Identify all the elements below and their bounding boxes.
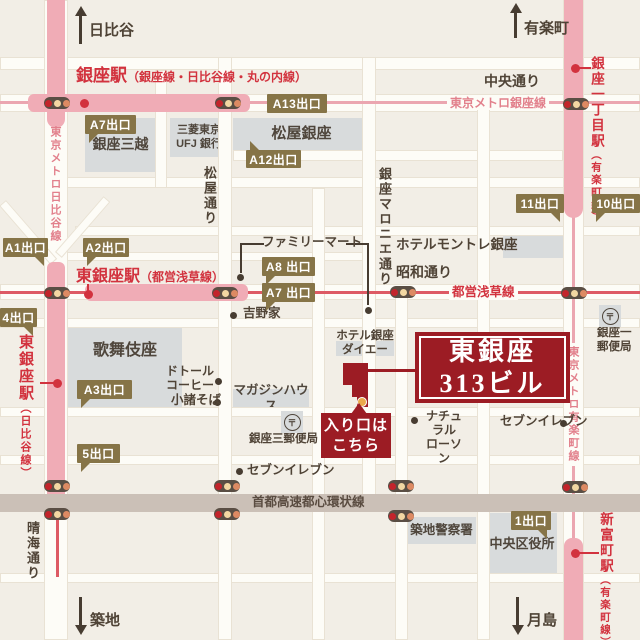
station-label: 新富町駅（有楽町線） [597,512,613,640]
traffic-light-lamp [580,290,587,297]
traffic-light-lamp [233,483,240,490]
map-label: 東京メトロ銀座線 [447,96,549,110]
traffic-light-icon [215,97,241,109]
label-text: セブンイレブン [500,414,588,429]
label-text: 銀座一 [597,327,632,341]
label-text: 東京メトロ銀座線 [450,96,546,110]
exit-badge-tail [89,133,99,143]
traffic-light-lamp [222,290,229,297]
traffic-light-lamp [45,511,52,518]
label-text: A3出口 [84,381,125,398]
poi-dot [411,417,418,424]
exit-badge: A3出口 [77,380,132,399]
label-text: 銀座三越 [93,136,149,154]
traffic-light-lamp [391,289,398,296]
label-text: 東京メトロ日比谷線 [49,126,60,243]
poi-label: ドトールコーヒー [166,364,214,392]
label-text: ホテルモントレ銀座 [396,237,518,253]
entrance-callout-pointer-icon [351,403,367,414]
traffic-light-icon [214,480,240,492]
destination-building-name: 東銀座 313ビル [419,336,566,399]
exit-badge-tail [34,256,44,266]
label-text: UFJ 銀行 [176,138,222,152]
traffic-light-icon [212,287,238,299]
traffic-light-icon [562,481,588,493]
station-line-suffix: （銀座線・日比谷線・丸の内線） [127,70,307,84]
exit-badge: A12出口 [246,150,301,168]
traffic-light-lamp [562,290,569,297]
label-text: 4出口 [2,309,34,326]
post-office-icon: 〒 [599,305,621,327]
arrow-up-yurakucho-head [510,3,522,13]
traffic-light-lamp [63,483,70,490]
exit-badge-tail [266,301,276,311]
traffic-light-lamp [400,289,407,296]
exit-badge-tail [550,212,560,222]
map-label: 銀座三郵便局 [249,433,318,447]
exit-badge: A13出口 [267,94,327,113]
label-text: 郵便局 [597,341,632,355]
ginza-station-dot [80,99,89,108]
road-segment [395,294,408,640]
exit-badge-tail [87,256,97,266]
label-text: 5出口 [82,445,114,462]
map-label: 銀座マロニエ通り [378,167,391,287]
label-text: 1出口 [515,512,547,529]
shintomicho-station-dot [571,549,580,558]
arrow-down-tsukishima-head [512,625,524,635]
traffic-light-lamp [573,101,580,108]
traffic-light-lamp [215,511,222,518]
label-text: セブンイレブン [247,463,335,478]
traffic-light-lamp [54,290,61,297]
label-text: 歌舞伎座 [93,341,157,361]
traffic-light-icon [44,480,70,492]
traffic-light-lamp [54,483,61,490]
traffic-light-icon [561,287,587,299]
traffic-light-lamp [407,483,414,490]
label-text: A12出口 [249,151,298,168]
exit-badge: A7出口 [85,115,136,134]
poi-label: セブンイレブン [247,463,335,478]
label-text: ホテル銀座 [334,330,396,344]
traffic-light-lamp [54,100,61,107]
arrow-down-tsukiji [79,597,82,627]
traffic-light-icon [388,480,414,492]
label-text: 日比谷 [89,22,134,40]
exit-badge: 5出口 [77,444,120,463]
label-text: ローソン [421,437,467,465]
exit-badge: 4出口 [0,308,37,327]
station-line-suffix: （都営浅草線） [140,270,224,284]
label-text: A7 出口 [266,284,311,301]
poi-label: 小諸そば [171,393,221,408]
station-name: 新富町駅 [598,512,613,574]
poi-dot [230,312,237,319]
traffic-light-lamp [45,290,52,297]
station-label: 銀座駅（銀座線・日比谷線・丸の内線） [76,66,307,87]
exit-badge-tail [537,529,547,539]
label-text: ドトール [166,364,214,378]
post-mark: 〒 [284,414,301,431]
traffic-light-lamp [233,511,240,518]
label-text: 有楽町 [524,20,569,38]
familymart-pointer-left-h [240,243,264,245]
traffic-light-lamp [234,100,241,107]
traffic-light-lamp [571,290,578,297]
higashi-ginza-station-dot [84,290,93,299]
poi-label: ナチュラルローソン [421,409,467,466]
label-text: 小諸そば [171,393,221,408]
destination-building-box: 東銀座 313ビル [415,332,570,403]
exit-badge-tail [81,398,91,408]
exit-badge: 10出口 [592,194,640,213]
map-label: 有楽町 [524,20,569,38]
road-segment [62,177,640,188]
traffic-light-lamp [409,289,416,296]
entrance-callout-line1: 入り口は [324,416,388,436]
hibiya-metro-line [56,515,59,577]
map-label: 築地 [90,612,120,630]
label-text: 10出口 [596,195,635,212]
road-segment [218,57,232,640]
traffic-light-lamp [407,513,414,520]
traffic-light-lamp [54,511,61,518]
arrow-up-hibiya [79,14,82,44]
road-segment [155,70,167,188]
traffic-light-lamp [225,100,232,107]
label-text: 都営浅草線 [452,285,515,300]
exit-badge-tail [23,326,33,336]
traffic-light-icon [388,510,414,522]
traffic-light-lamp [581,484,588,491]
traffic-light-icon [214,508,240,520]
map-label: 昭和通り [396,264,452,281]
traffic-light-lamp [45,100,52,107]
poi-dot [365,307,372,314]
map-label: 銀座一郵便局 [597,327,632,354]
map-label: 晴海通り [26,521,39,581]
exit-badge-tail [596,212,606,222]
destination-name-line2: 313ビル [439,368,545,399]
traffic-light-lamp [231,290,238,297]
building-block: マガジンハウス [233,389,309,408]
label-text: 銀座マロニエ通り [378,167,391,287]
higashi-ginza-hibiya-dot [53,379,62,388]
traffic-light-lamp [563,484,570,491]
traffic-light-lamp [213,290,220,297]
label-text: A13出口 [273,95,322,112]
arrow-down-tsukiji-head [75,625,87,635]
traffic-light-lamp [389,483,396,490]
map-label: 中央通り [484,73,540,90]
label-text: 昭和通り [396,264,452,281]
exit-badge-tail [250,141,260,151]
exit-badge: 11出口 [516,194,564,213]
label-text: A7出口 [90,116,131,133]
label-text: A8 出口 [266,258,311,275]
station-label: 東銀座駅（日比谷線） [17,334,33,480]
traffic-light-icon [44,287,70,299]
label-text: A2出口 [85,239,126,256]
exit-badge: 1出口 [511,511,551,530]
map-label: ホテルモントレ銀座 [396,237,518,253]
label-text: 首都高速都心環状線 [252,495,365,510]
map-label: 首都高速都心環状線 [252,495,365,510]
traffic-light-lamp [63,511,70,518]
label-text: 晴海通り [26,521,39,581]
familymart-pointer-left-v [240,243,242,273]
poi-dot [237,274,244,281]
traffic-light-lamp [63,290,70,297]
traffic-light-lamp [45,483,52,490]
poi-dot [236,468,243,475]
label-text: 月島 [527,612,557,630]
arrow-up-yurakucho [514,11,517,38]
label-text: 中央通り [484,73,540,90]
entrance-callout-line2: こちら [332,436,380,456]
traffic-light-lamp [216,100,223,107]
building-block: 築地警察署 [407,517,476,544]
station-name: 東銀座駅 [17,334,34,402]
traffic-light-lamp [63,100,70,107]
traffic-light-icon [390,286,416,298]
label-text: ナチュラル [421,409,467,437]
arrow-down-tsukishima [516,597,519,627]
map-label: 日比谷 [89,22,134,40]
map-label: 松屋通り [203,166,216,226]
destination-pointer [368,369,415,372]
map-label: 月島 [527,612,557,630]
traffic-light-lamp [398,483,405,490]
label-text: 松屋通り [203,166,216,226]
poi-dot [215,378,222,385]
traffic-light-lamp [398,513,405,520]
poi-label: セブンイレブン [500,414,588,429]
label-text: ダイエー [334,344,396,358]
traffic-light-icon [44,97,70,109]
traffic-light-icon [44,508,70,520]
station-line-suffix: （有楽町線） [599,574,611,640]
familymart-pointer-right-v [367,243,369,305]
label-text: A1出口 [5,239,46,256]
label-text: 松屋銀座 [271,125,331,144]
traffic-light-lamp [215,483,222,490]
exit-badge: A2出口 [83,238,129,257]
exit-badge-tail [81,462,91,472]
exit-badge: A1出口 [3,238,48,257]
station-name: 東銀座駅 [76,268,140,285]
station-label: 東銀座駅（都営浅草線） [76,268,224,287]
map-label: 都営浅草線 [449,285,518,300]
map-label: ホテル銀座ダイエー [334,330,396,357]
shintomicho-pointer [577,552,599,554]
traffic-light-lamp [389,513,396,520]
station-line-suffix: （日比谷線） [19,402,31,480]
label-text: 銀座三郵便局 [249,433,318,447]
traffic-light-lamp [572,484,579,491]
arrow-up-hibiya-head [75,6,87,16]
traffic-light-lamp [564,101,571,108]
label-text: コーヒー [166,378,214,392]
post-mark: 〒 [602,308,619,325]
poi-label: ファミリーマート [262,235,362,250]
entrance-callout: 入り口は こちら [321,413,391,458]
access-map: 銀座三越三菱東京UFJ 銀行松屋銀座歌舞伎座マガジンハウス築地警察署中央区役所日… [0,0,640,640]
station-name: 銀座一丁目駅 [589,56,604,149]
post-office-icon: 〒 [281,411,303,433]
label-text: 築地警察署 [410,523,473,539]
exit-badge: A8 出口 [262,257,315,276]
ginza-itchome-station-dot [571,64,580,73]
label-text: 11出口 [521,195,560,212]
traffic-light-lamp [224,511,231,518]
exit-badge: A7 出口 [262,283,315,302]
label-text: 三菱東京 [177,124,221,138]
label-text: 築地 [90,612,120,630]
traffic-light-icon [563,98,589,110]
label-text: ファミリーマート [262,235,362,250]
traffic-light-lamp [224,483,231,490]
destination-name-line1: 東銀座 [449,336,536,367]
map-label: 東京メトロ日比谷線 [49,126,60,243]
station-name: 銀座駅 [76,66,127,85]
